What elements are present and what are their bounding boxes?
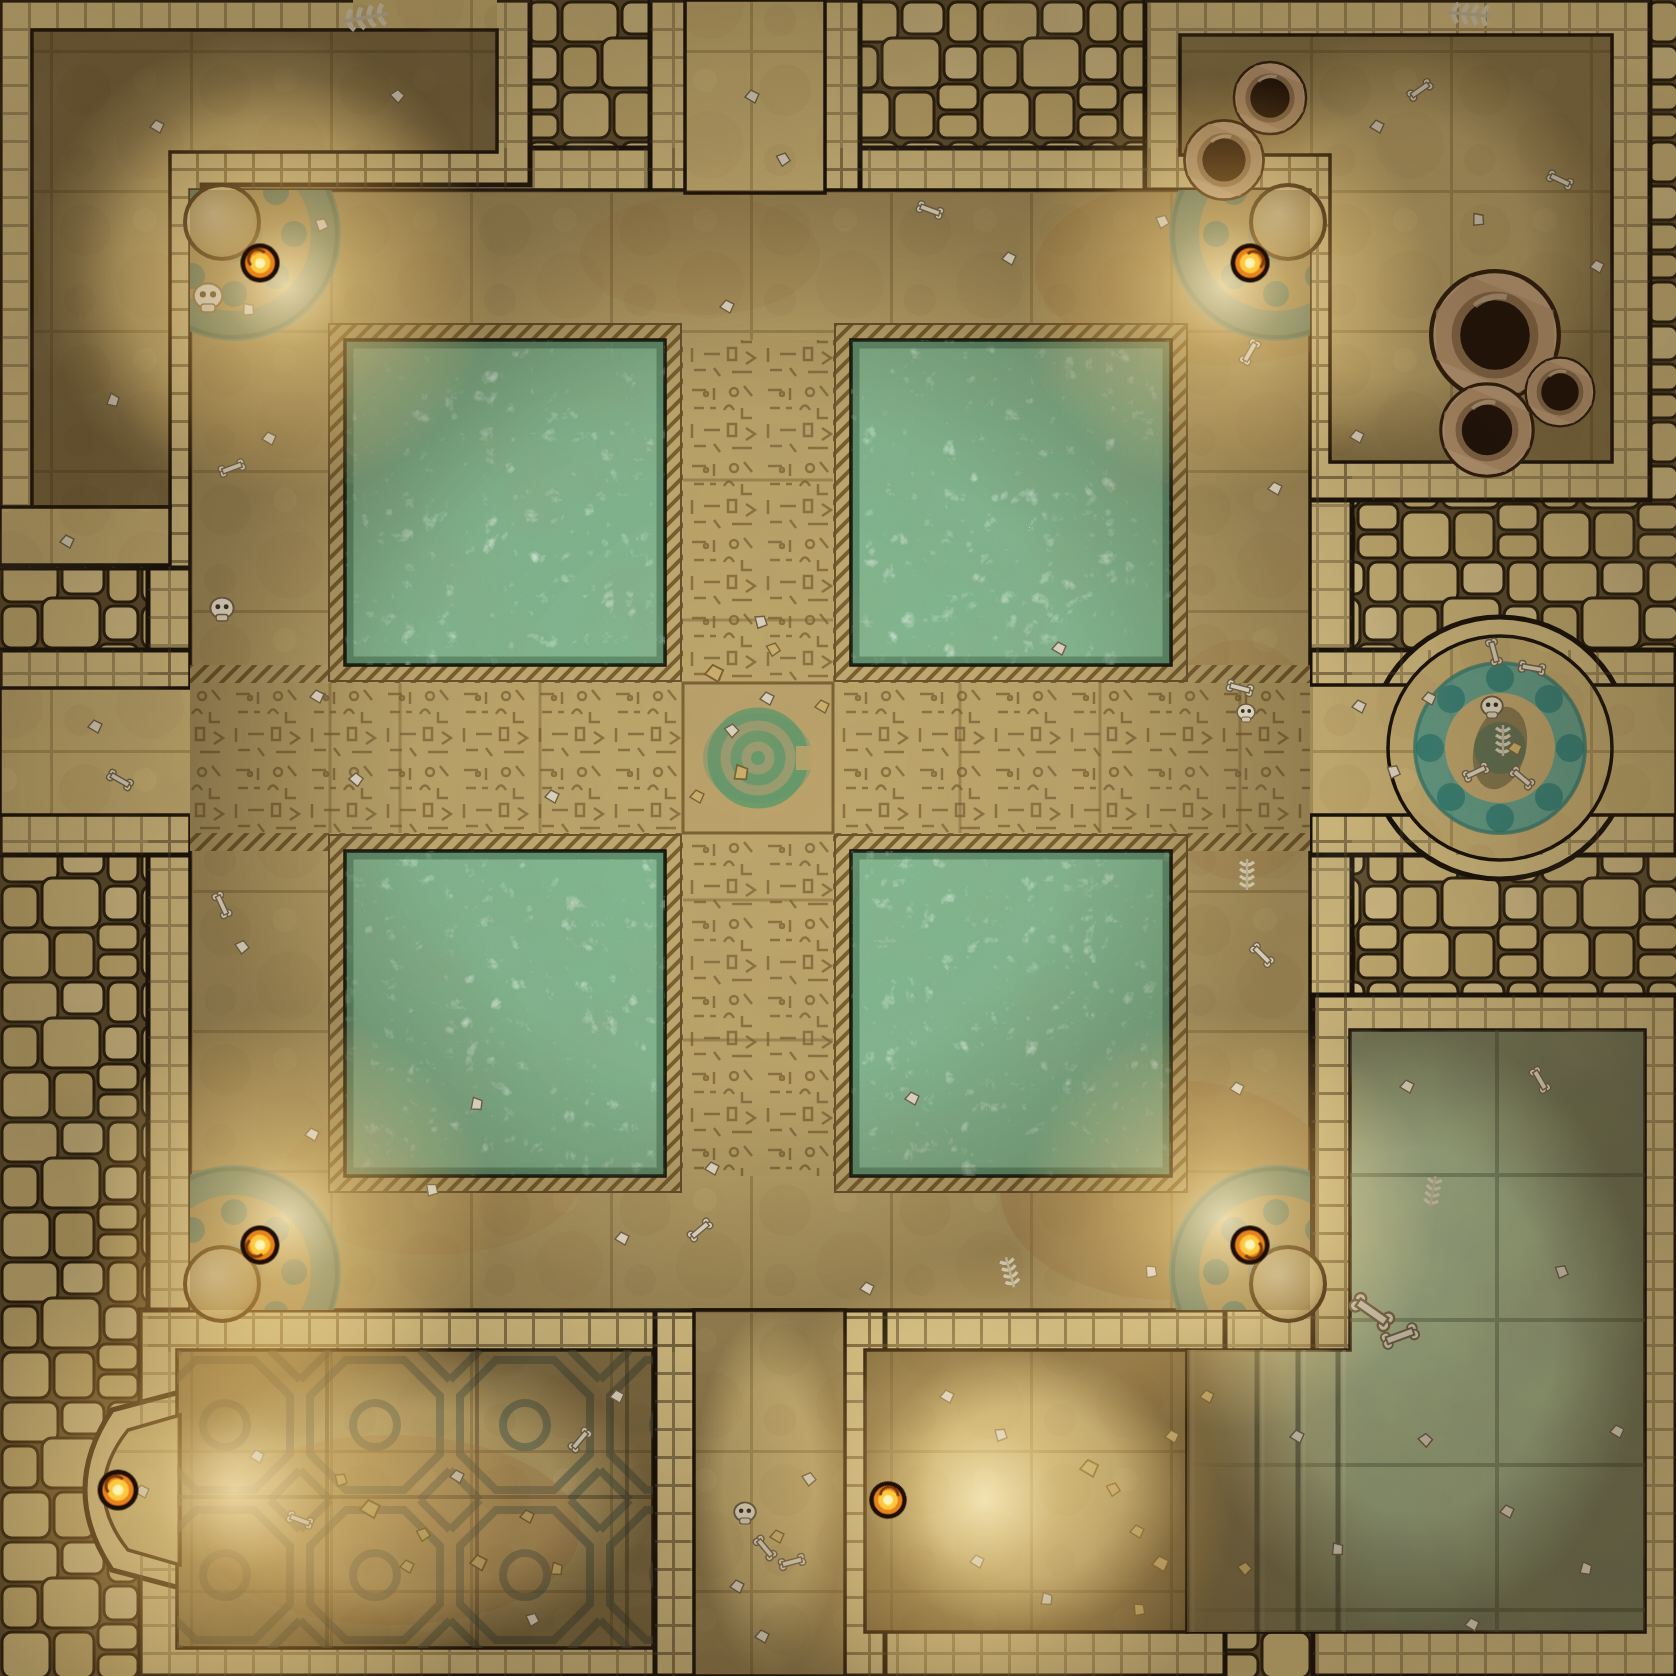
torch-flame-sw bbox=[240, 1225, 279, 1264]
battle-map bbox=[0, 0, 1676, 1676]
map-canvas bbox=[0, 0, 1676, 1676]
torch-flame-ne bbox=[1230, 243, 1269, 282]
torch-flame-apse bbox=[98, 1470, 139, 1511]
torch-flame-se bbox=[1230, 1225, 1269, 1264]
torch-flame-nw bbox=[240, 243, 279, 282]
